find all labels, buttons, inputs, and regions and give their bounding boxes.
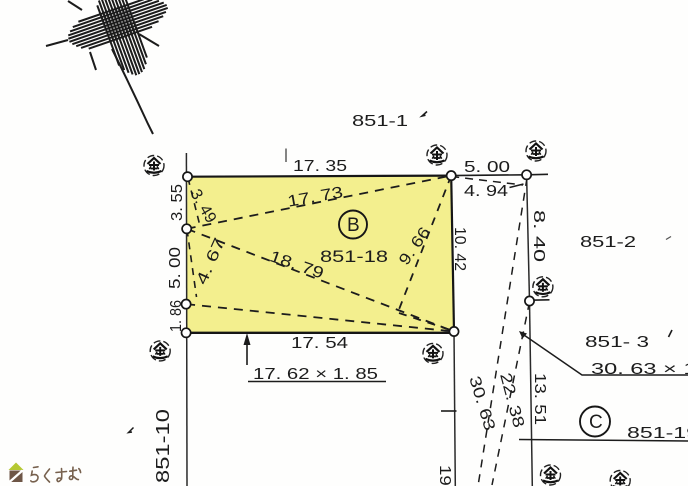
svg-text:5. 00: 5. 00 xyxy=(464,159,510,176)
svg-text:1. 86: 1. 86 xyxy=(168,300,185,332)
svg-text:17. 62 × 1. 85: 17. 62 × 1. 85 xyxy=(253,366,378,383)
svg-text:851-2: 851-2 xyxy=(580,234,636,251)
svg-text:5. 00: 5. 00 xyxy=(167,247,184,289)
svg-text:17. 35: 17. 35 xyxy=(293,158,347,175)
svg-text:3. 55: 3. 55 xyxy=(169,184,186,221)
svg-text:10. 42: 10. 42 xyxy=(451,227,468,271)
svg-text:851-19: 851-19 xyxy=(627,425,688,442)
svg-text:13. 51: 13. 51 xyxy=(531,373,548,425)
svg-text:851-10: 851-10 xyxy=(153,409,173,483)
svg-text:C: C xyxy=(589,412,603,433)
svg-text:851- 3: 851- 3 xyxy=(585,334,649,351)
svg-text:19.: 19. xyxy=(436,465,453,486)
svg-text:17. 54: 17. 54 xyxy=(291,335,348,352)
svg-text:30. 63 × 1.: 30. 63 × 1. xyxy=(591,361,688,378)
svg-text:4. 94: 4. 94 xyxy=(464,183,508,200)
svg-text:851-18: 851-18 xyxy=(320,247,388,266)
svg-text:8. 40: 8. 40 xyxy=(530,210,547,262)
svg-text:851-1: 851-1 xyxy=(352,113,408,130)
svg-text:B: B xyxy=(347,215,360,236)
